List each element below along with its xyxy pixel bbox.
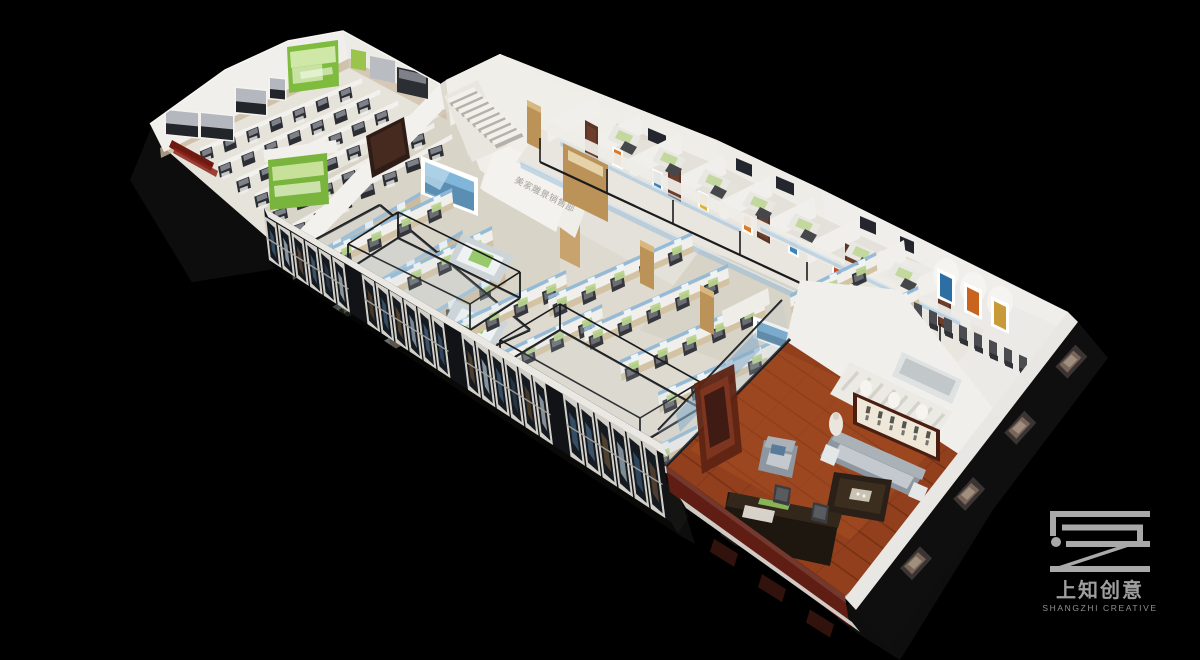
svg-text:SHANGZHI CREATIVE: SHANGZHI CREATIVE: [1042, 603, 1157, 613]
svg-text:上知创意: 上知创意: [1056, 578, 1144, 602]
